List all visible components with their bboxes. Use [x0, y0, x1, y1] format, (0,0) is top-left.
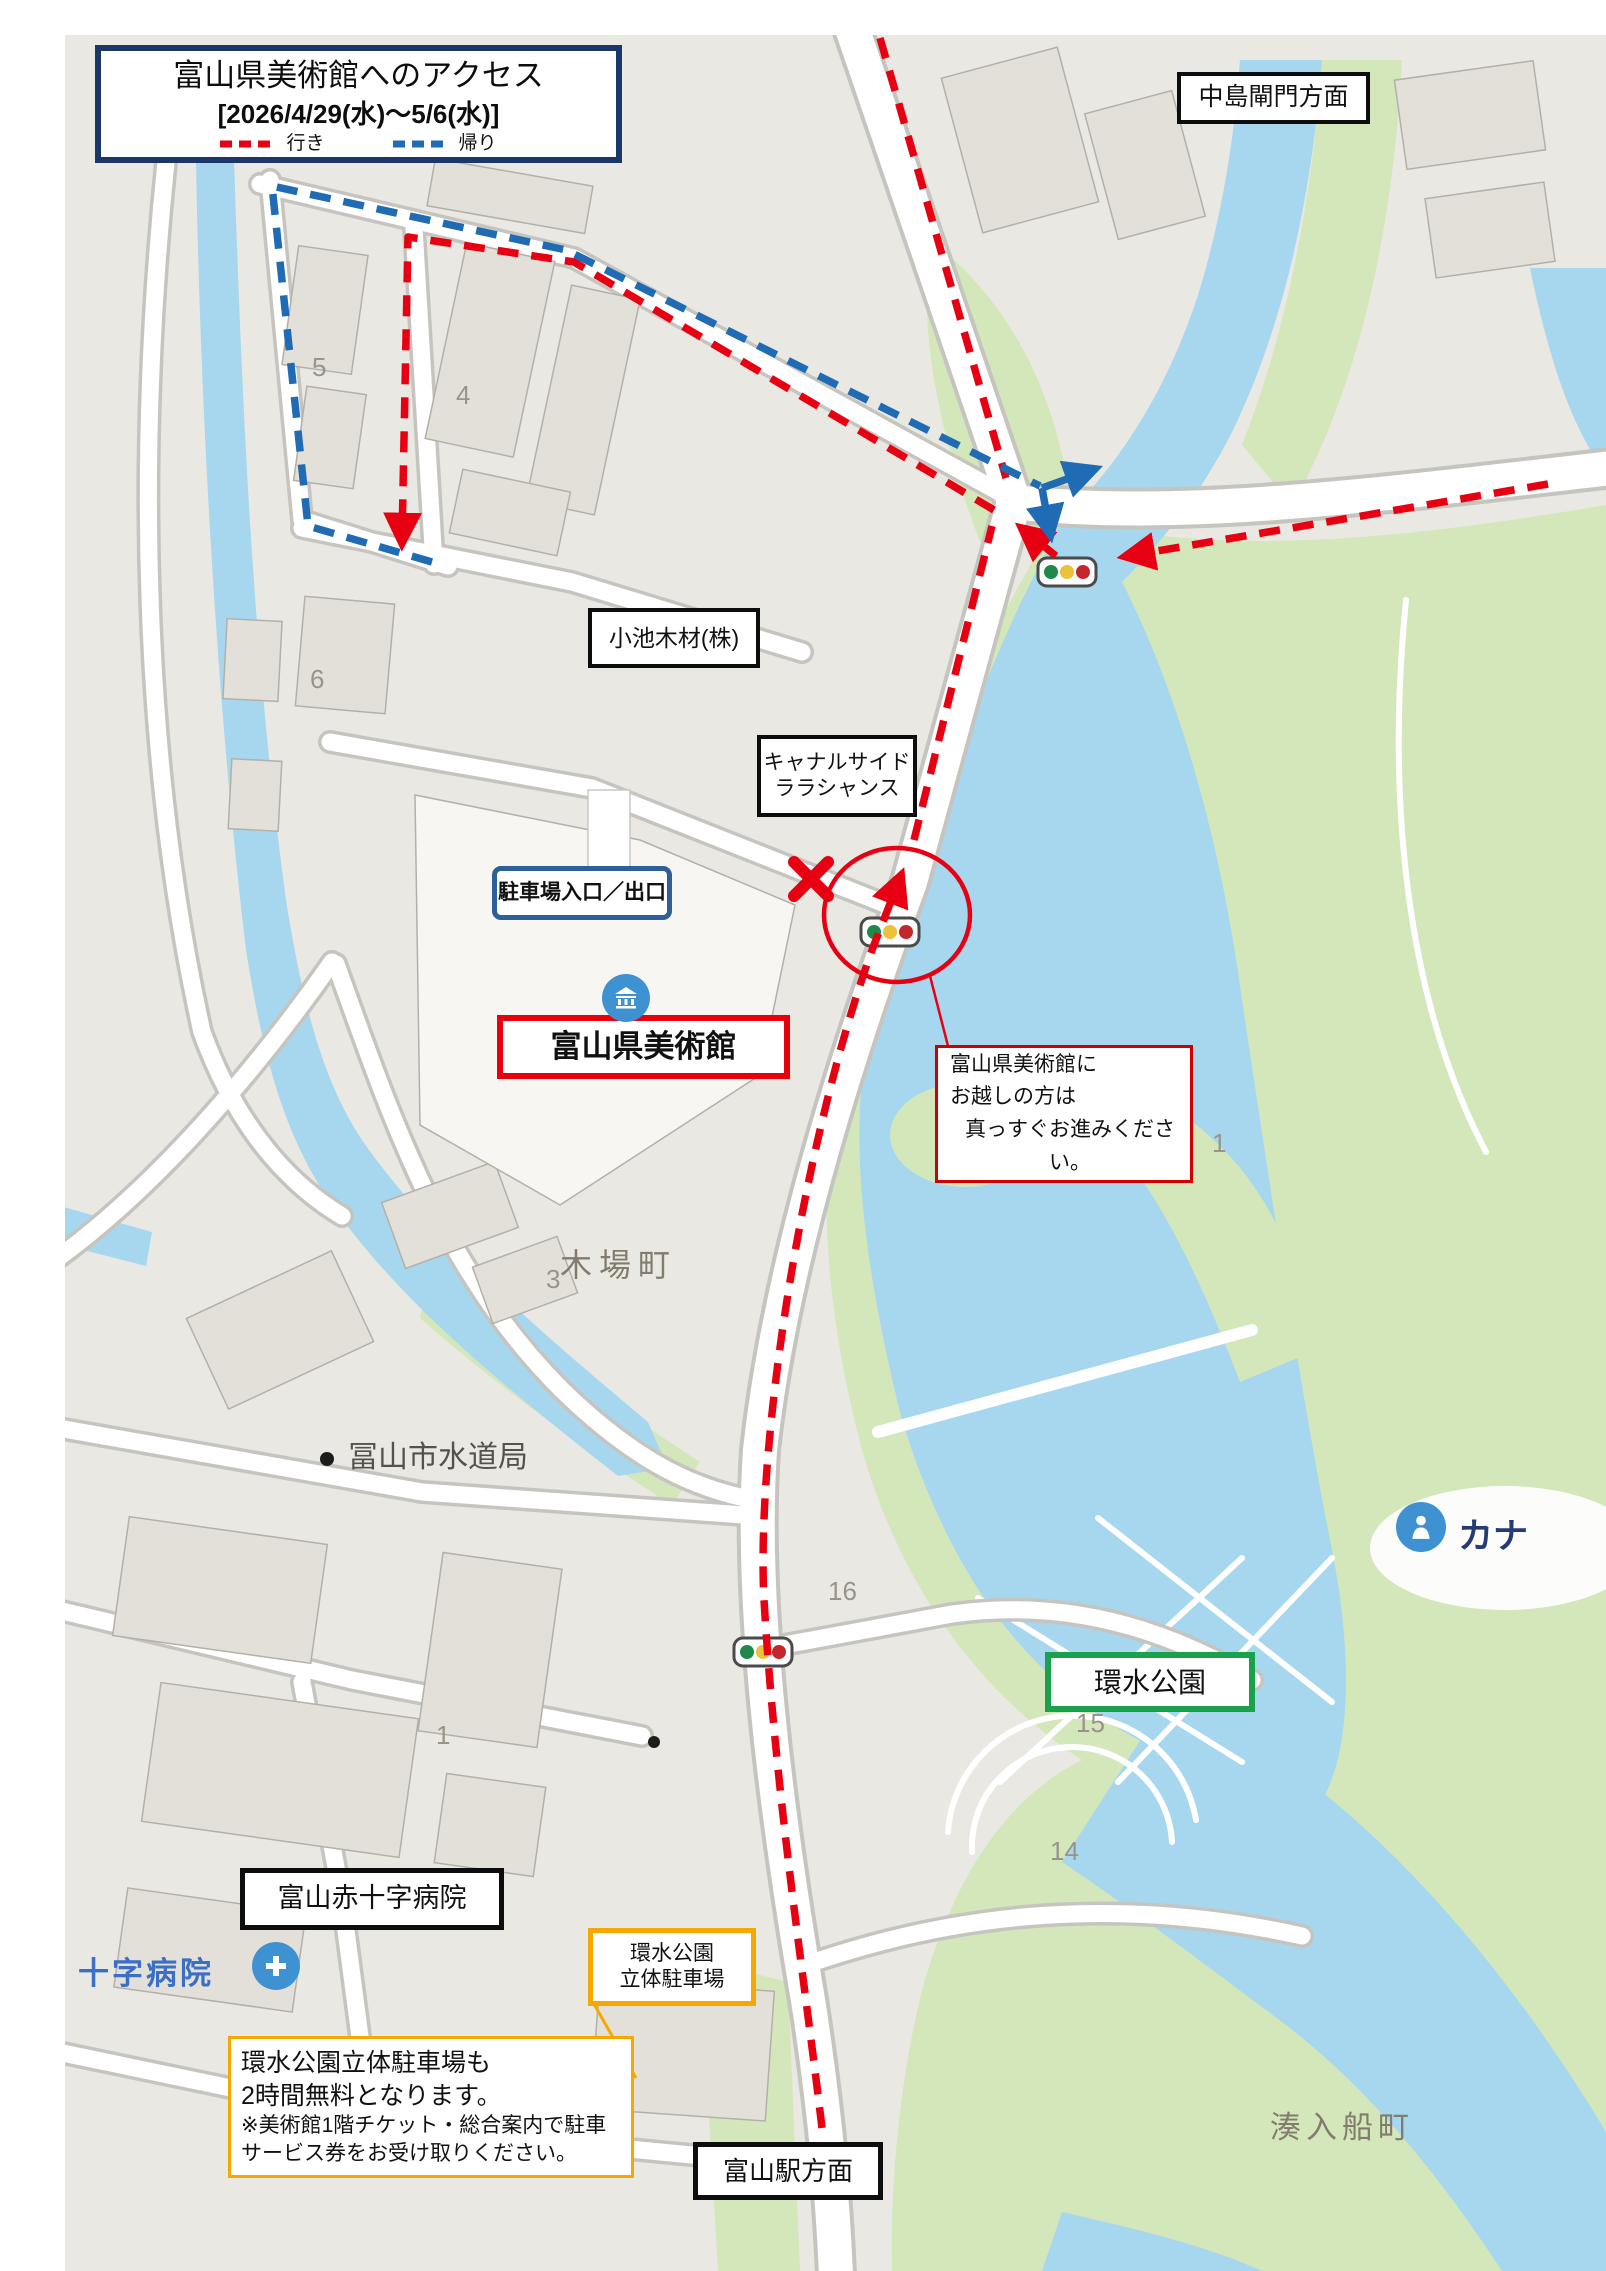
kana-poi-icon — [1396, 1502, 1446, 1552]
museum-label: 富山県美術館 — [497, 1015, 790, 1079]
traffic-light-north — [1038, 558, 1096, 586]
kansui-park-label: 環水公園 — [1045, 1652, 1255, 1712]
guide-note-box: 富山県美術館に お越しの方は 真っすぐお進みください。 — [935, 1045, 1193, 1183]
parking-info-box: 環水公園立体駐車場も 2時間無料となります。 ※美術館1階チケット・総合案内で駐… — [228, 2036, 634, 2178]
date-range: [2026/4/29(水)～5/6(水)] — [218, 98, 500, 131]
nakajima-lock-label: 中島閘門方面 — [1177, 72, 1370, 124]
going-label: 行き — [286, 132, 324, 156]
parking-gate-callout-stem — [588, 790, 630, 868]
kibamachi-label: 木場町 — [560, 1240, 677, 1286]
legend: 行き 帰り — [220, 132, 496, 156]
block-number: 6 — [310, 664, 324, 695]
block-number: 3 — [546, 1264, 560, 1295]
block-number: 15 — [1076, 1708, 1105, 1739]
block-number: 14 — [1050, 1836, 1079, 1867]
going-route-swatch — [220, 139, 272, 149]
map-poi-dot — [648, 1736, 660, 1748]
hospital-map-label: 十字病院 — [78, 1948, 214, 1993]
page-title: 富山県美術館へのアクセス — [173, 57, 543, 96]
access-map-page: 富山県美術館へのアクセス [2026/4/29(水)～5/6(水)] 行き 帰り… — [0, 0, 1606, 2271]
block-number: 1 — [1212, 1128, 1226, 1159]
canalside-label: キャナルサイド ララシャンス — [757, 735, 917, 817]
return-label: 帰り — [459, 132, 497, 156]
waterworks-label: 冨山市水道局 — [320, 1432, 528, 1476]
museum-poi-icon — [602, 974, 650, 1022]
traffic-light-south — [734, 1638, 792, 1666]
title-box: 富山県美術館へのアクセス [2026/4/29(水)～5/6(水)] 行き 帰り — [95, 45, 622, 163]
minato-irifune-label: 湊入船町 — [1270, 2102, 1414, 2147]
kansui-parking-label: 環水公園 立体駐車場 — [588, 1928, 756, 2006]
waterworks-dot — [320, 1452, 334, 1466]
kana-map-label: カナ — [1458, 1508, 1528, 1559]
return-route-swatch — [393, 139, 445, 149]
traffic-light-museum — [861, 918, 919, 946]
map-graphic — [0, 0, 1606, 2271]
hospital-icon — [252, 1942, 300, 1990]
koike-lumber-label: 小池木材(株) — [588, 608, 760, 668]
toyama-station-label: 富山駅方面 — [693, 2142, 883, 2200]
block-number: 4 — [456, 380, 470, 411]
left-margin — [0, 0, 65, 2271]
block-number: 16 — [828, 1576, 857, 1607]
block-number: 1 — [436, 1720, 450, 1751]
red-cross-hospital-label: 富山赤十字病院 — [240, 1868, 504, 1930]
parking-gate-label: 駐車場入口／出口 — [492, 866, 672, 920]
top-margin — [0, 0, 1606, 35]
block-number: 5 — [312, 352, 326, 383]
